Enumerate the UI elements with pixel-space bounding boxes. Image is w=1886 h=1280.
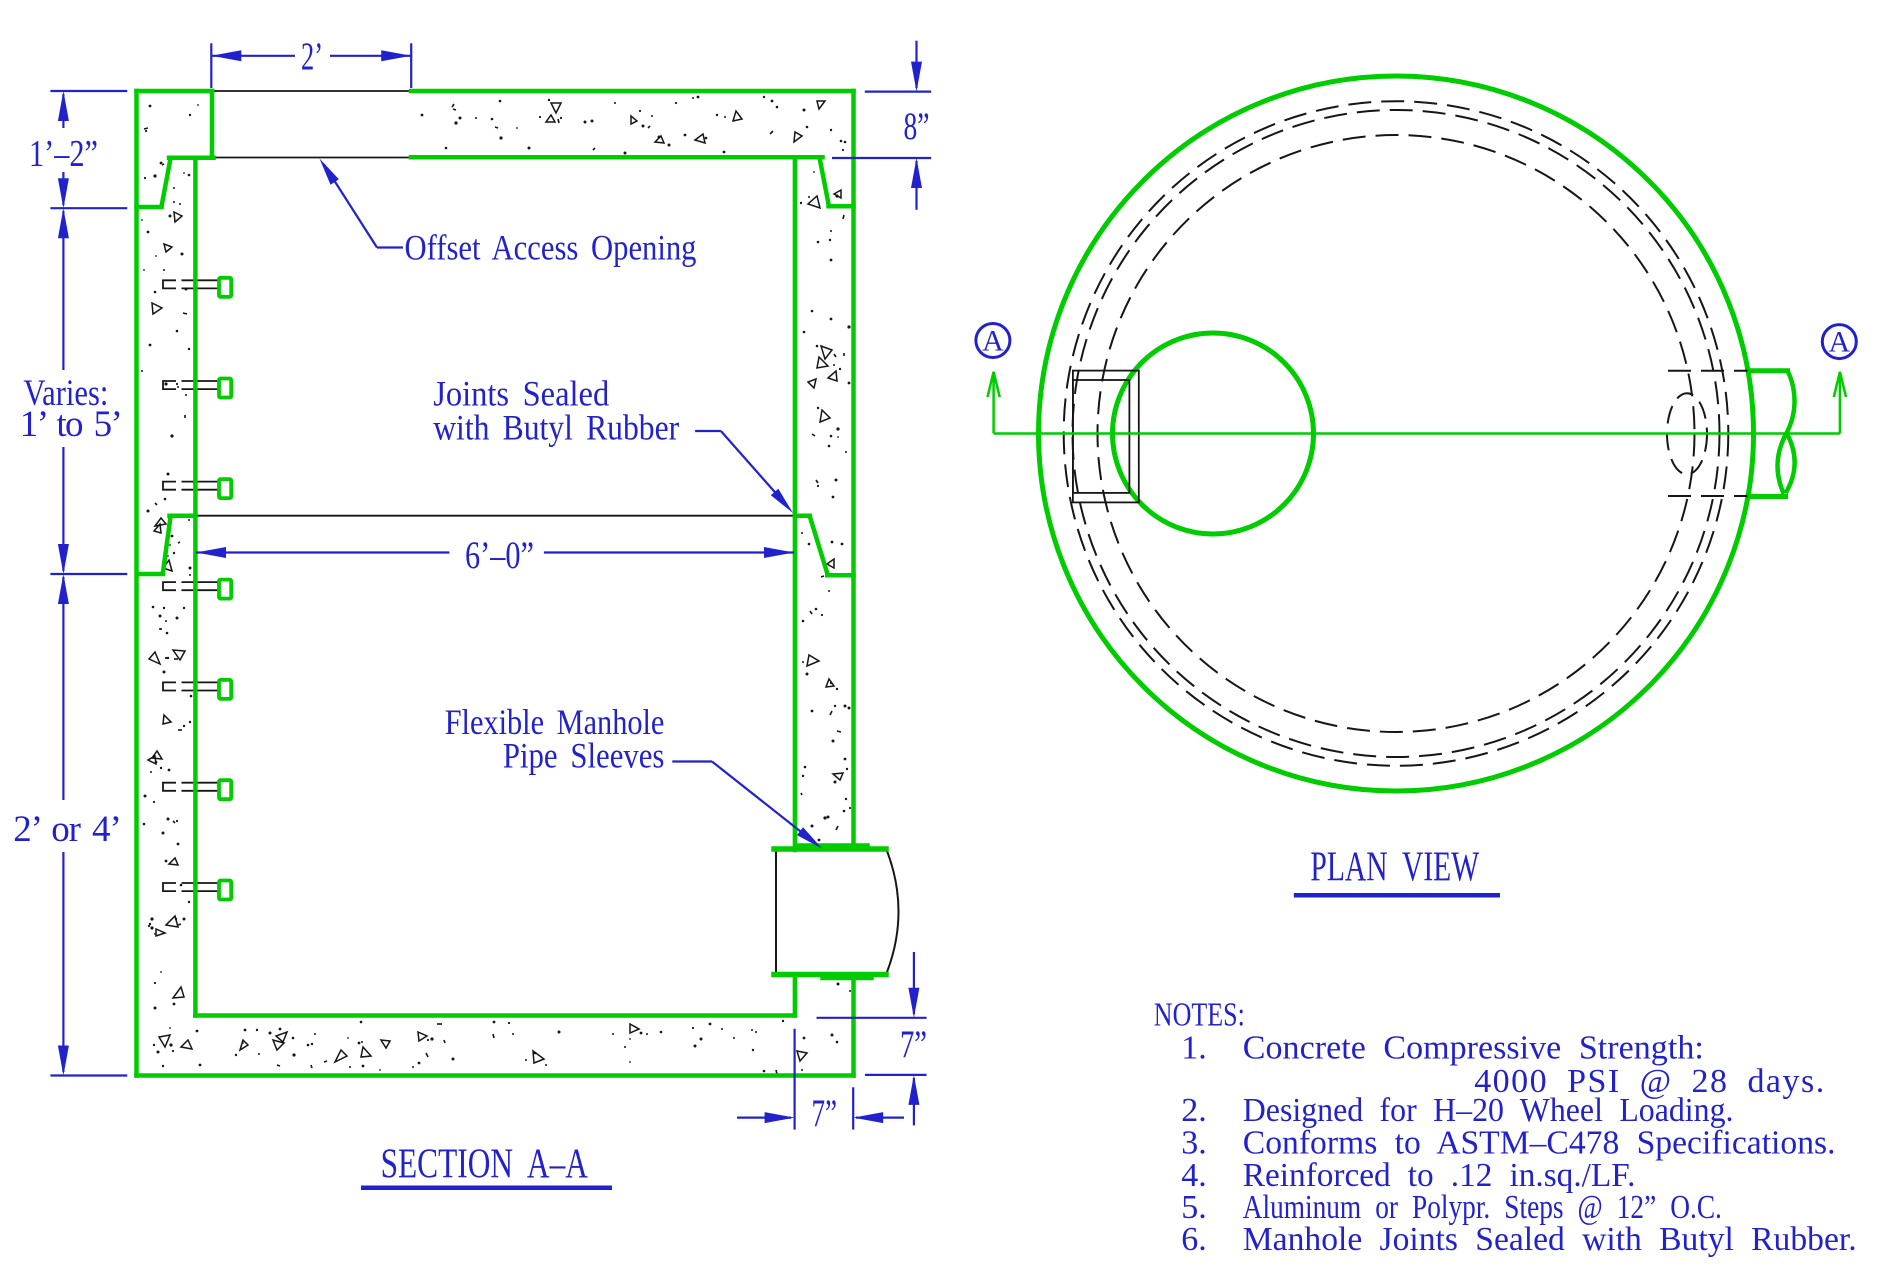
svg-text:2’: 2’ <box>301 35 323 78</box>
svg-text:NOTES:: NOTES: <box>1154 997 1245 1034</box>
svg-text:2’ or 4’: 2’ or 4’ <box>13 809 122 850</box>
svg-text:Manhole Joints Sealed with But: Manhole Joints Sealed with Butyl Rubber. <box>1243 1221 1857 1258</box>
svg-text:SECTION A–A: SECTION A–A <box>381 1142 589 1188</box>
svg-text:1’ to 5’: 1’ to 5’ <box>20 404 123 445</box>
svg-text:PLAN VIEW: PLAN VIEW <box>1310 845 1479 891</box>
svg-text:6.: 6. <box>1181 1221 1207 1258</box>
svg-text:1’–2”: 1’–2” <box>29 133 98 175</box>
svg-text:7”: 7” <box>812 1092 838 1135</box>
svg-text:3.: 3. <box>1181 1125 1207 1162</box>
svg-text:7”: 7” <box>900 1023 927 1066</box>
svg-text:8”: 8” <box>904 105 930 148</box>
svg-text:Concrete Compressive Strength:: Concrete Compressive Strength: <box>1243 1029 1704 1066</box>
svg-text:with Butyl Rubber: with Butyl Rubber <box>433 408 679 448</box>
svg-text:6’–0”: 6’–0” <box>465 534 534 577</box>
svg-text:1.: 1. <box>1181 1029 1207 1066</box>
svg-text:A: A <box>1828 326 1850 359</box>
svg-text:Conforms to ASTM–C478 Specific: Conforms to ASTM–C478 Specifications. <box>1243 1125 1836 1162</box>
svg-text:A: A <box>982 325 1004 358</box>
svg-text:Offset Access Opening: Offset Access Opening <box>405 228 697 268</box>
svg-text:Pipe Sleeves: Pipe Sleeves <box>503 736 665 776</box>
